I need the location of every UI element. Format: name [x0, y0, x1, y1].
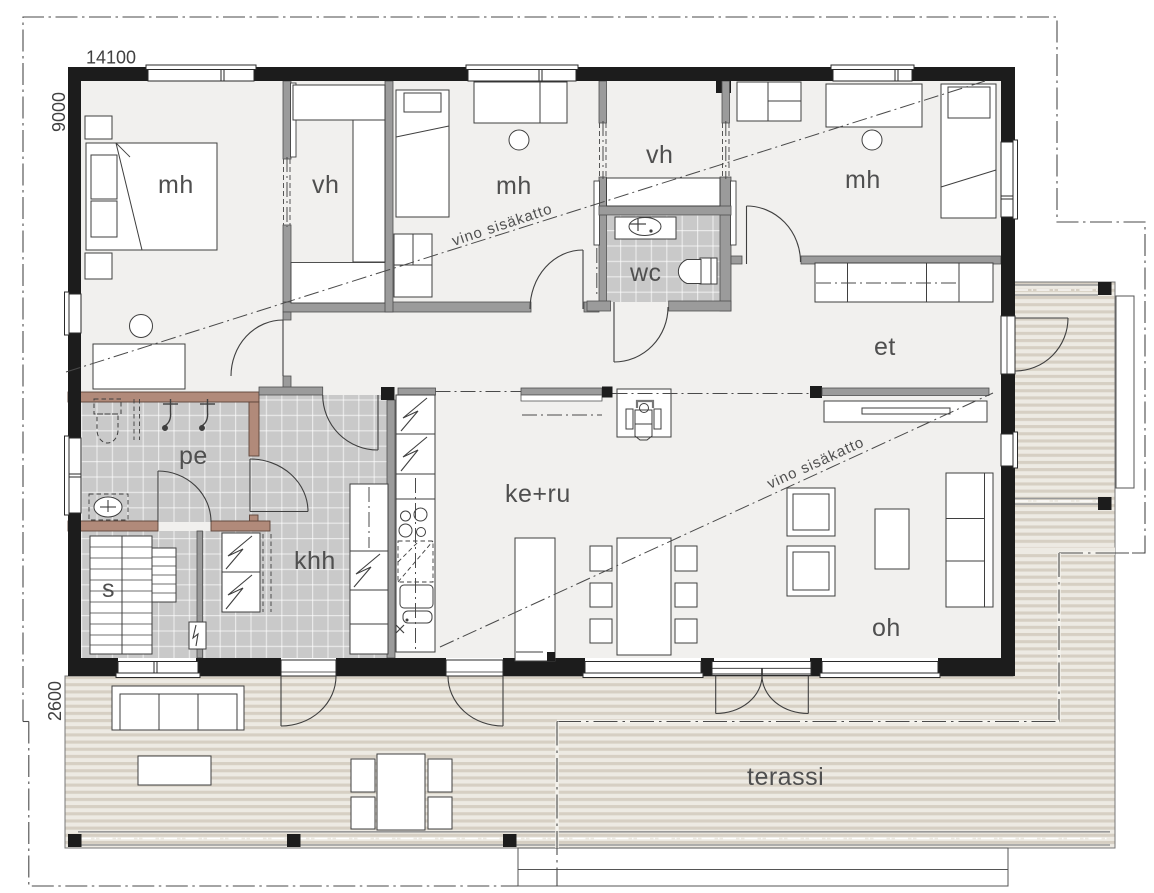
svg-text:terassi: terassi	[747, 763, 824, 791]
svg-text:14100: 14100	[86, 48, 136, 68]
svg-text:ke+ru: ke+ru	[505, 480, 571, 508]
svg-text:vh: vh	[312, 171, 339, 199]
svg-text:et: et	[874, 333, 896, 361]
svg-text:mh: mh	[496, 172, 532, 200]
svg-text:2600: 2600	[45, 681, 65, 721]
svg-text:oh: oh	[872, 614, 901, 642]
svg-text:khh: khh	[294, 547, 336, 575]
svg-text:vh: vh	[646, 141, 673, 169]
svg-text:9000: 9000	[49, 92, 69, 132]
svg-text:s: s	[102, 575, 115, 603]
svg-text:mh: mh	[158, 171, 194, 199]
svg-text:mh: mh	[845, 166, 881, 194]
svg-text:wc: wc	[629, 259, 662, 287]
svg-text:pe: pe	[179, 442, 208, 470]
